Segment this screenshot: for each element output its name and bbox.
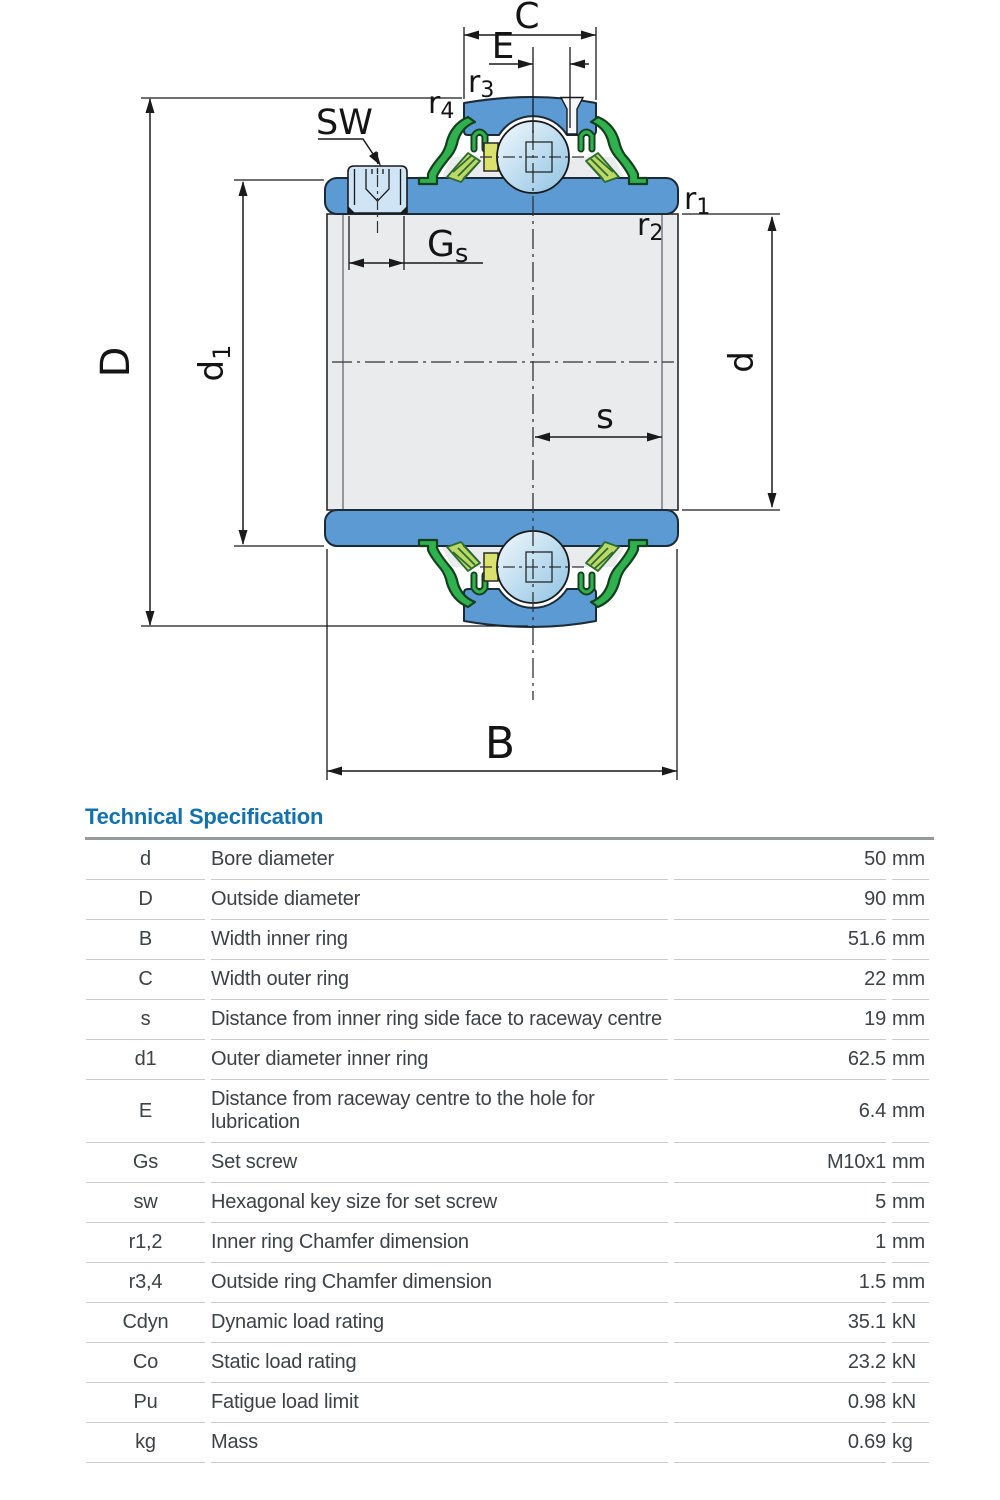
table-row: Gs Set screw M10x1 mm [86, 1143, 929, 1183]
spec-symbol: d1 [86, 1040, 205, 1080]
spec-description: Inner ring Chamfer dimension [211, 1223, 668, 1263]
dimension-d1: d1 [192, 180, 324, 546]
spec-symbol: Gs [86, 1143, 205, 1183]
spec-symbol: B [86, 920, 205, 960]
table-row: Pu Fatigue load limit 0.98 kN [86, 1383, 929, 1423]
spec-symbol: s [86, 1000, 205, 1040]
spec-symbol: Cdyn [86, 1303, 205, 1343]
technical-specification-section: Technical Specification d Bore diameter … [0, 804, 1000, 1463]
spec-description: Width outer ring [211, 960, 668, 1000]
spec-value: 5 [674, 1183, 886, 1223]
spec-value: 62.5 [674, 1040, 886, 1080]
table-row: s Distance from inner ring side face to … [86, 1000, 929, 1040]
spec-value: 35.1 [674, 1303, 886, 1343]
spec-table: d Bore diameter 50 mm D Outside diameter… [80, 840, 935, 1463]
spec-value: M10x1 [674, 1143, 886, 1183]
spec-description: Bore diameter [211, 840, 668, 880]
spec-unit: mm [892, 1223, 929, 1263]
spec-symbol: r1,2 [86, 1223, 205, 1263]
spec-unit: mm [892, 840, 929, 880]
spec-value: 50 [674, 840, 886, 880]
spec-symbol: E [86, 1080, 205, 1143]
spec-description: Distance from raceway centre to the hole… [211, 1080, 668, 1143]
table-row: r3,4 Outside ring Chamfer dimension 1.5 … [86, 1263, 929, 1303]
spec-value: 22 [674, 960, 886, 1000]
spec-value: 23.2 [674, 1343, 886, 1383]
spec-unit: kN [892, 1383, 929, 1423]
spec-value: 6.4 [674, 1080, 886, 1143]
spec-description: Set screw [211, 1143, 668, 1183]
section-title: Technical Specification [85, 804, 1000, 830]
spec-symbol: Co [86, 1343, 205, 1383]
spec-description: Dynamic load rating [211, 1303, 668, 1343]
table-row: Co Static load rating 23.2 kN [86, 1343, 929, 1383]
table-row: Cdyn Dynamic load rating 35.1 kN [86, 1303, 929, 1343]
spec-unit: mm [892, 960, 929, 1000]
table-row: kg Mass 0.69 kg [86, 1423, 929, 1463]
inner-ring-band-bottom [325, 510, 678, 546]
spec-unit: kN [892, 1343, 929, 1383]
spec-symbol: kg [86, 1423, 205, 1463]
spec-value: 0.98 [674, 1383, 886, 1423]
spec-unit: mm [892, 1040, 929, 1080]
spec-unit: mm [892, 1080, 929, 1143]
spec-symbol: D [86, 880, 205, 920]
spec-description: Hexagonal key size for set screw [211, 1183, 668, 1223]
dimension-d: d [682, 214, 780, 510]
dim-label-s: s [596, 397, 614, 437]
table-row: sw Hexagonal key size for set screw 5 mm [86, 1183, 929, 1223]
dim-label-C: C [514, 0, 539, 37]
spec-description: Mass [211, 1423, 668, 1463]
bearing-technical-drawing: C E r3 r4 SW Gs D d1 [0, 0, 1000, 795]
dim-label-d: d [722, 351, 762, 373]
spec-unit: mm [892, 1183, 929, 1223]
spec-description: Outer diameter inner ring [211, 1040, 668, 1080]
spec-value: 1.5 [674, 1263, 886, 1303]
spec-unit: mm [892, 880, 929, 920]
dim-label-r1: r1 [684, 182, 710, 220]
dim-label-E: E [492, 26, 515, 67]
spec-value: 0.69 [674, 1423, 886, 1463]
spec-symbol: sw [86, 1183, 205, 1223]
dim-label-d1: d1 [192, 345, 236, 382]
spec-unit: mm [892, 1000, 929, 1040]
spec-symbol: r3,4 [86, 1263, 205, 1303]
spec-description: Static load rating [211, 1343, 668, 1383]
spec-value: 19 [674, 1000, 886, 1040]
dim-label-r4: r4 [428, 86, 454, 124]
table-row: B Width inner ring 51.6 mm [86, 920, 929, 960]
table-row: d Bore diameter 50 mm [86, 840, 929, 880]
table-row: E Distance from raceway centre to the ho… [86, 1080, 929, 1143]
table-row: r1,2 Inner ring Chamfer dimension 1 mm [86, 1223, 929, 1263]
spec-symbol: d [86, 840, 205, 880]
spec-description: Distance from inner ring side face to ra… [211, 1000, 668, 1040]
table-row: C Width outer ring 22 mm [86, 960, 929, 1000]
spec-unit: mm [892, 1143, 929, 1183]
spec-description: Fatigue load limit [211, 1383, 668, 1423]
spec-value: 90 [674, 880, 886, 920]
spec-unit: mm [892, 1263, 929, 1303]
spec-unit: mm [892, 920, 929, 960]
spec-value: 51.6 [674, 920, 886, 960]
spec-description: Outside diameter [211, 880, 668, 920]
dimension-SW: SW [316, 103, 381, 166]
table-row: d1 Outer diameter inner ring 62.5 mm [86, 1040, 929, 1080]
dim-label-D: D [93, 347, 139, 378]
spec-symbol: C [86, 960, 205, 1000]
table-row: D Outside diameter 90 mm [86, 880, 929, 920]
dim-label-B: B [485, 718, 515, 769]
spec-symbol: Pu [86, 1383, 205, 1423]
dim-label-SW: SW [316, 103, 373, 143]
spec-value: 1 [674, 1223, 886, 1263]
bearing-diagram: C E r3 r4 SW Gs D d1 [0, 0, 1000, 795]
spec-unit: kN [892, 1303, 929, 1343]
spec-description: Outside ring Chamfer dimension [211, 1263, 668, 1303]
spec-unit: kg [892, 1423, 929, 1463]
spec-description: Width inner ring [211, 920, 668, 960]
dim-label-r3: r3 [468, 65, 494, 103]
